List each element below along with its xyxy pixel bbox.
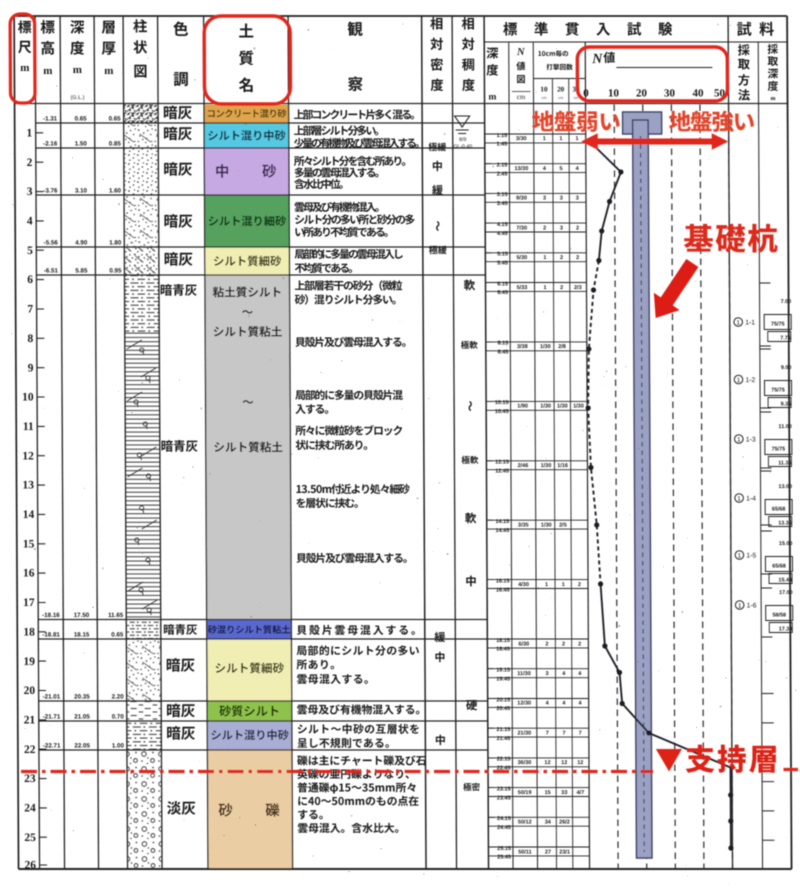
svg-text:6: 6 xyxy=(27,274,33,286)
svg-text:50/11: 50/11 xyxy=(518,849,532,855)
svg-text:3/38: 3/38 xyxy=(517,344,528,350)
svg-text:1/30: 1/30 xyxy=(540,344,551,350)
svg-text:2/5: 2/5 xyxy=(559,523,567,529)
svg-text:13: 13 xyxy=(23,480,35,492)
svg-text:1: 1 xyxy=(545,582,548,588)
svg-text:8: 8 xyxy=(27,333,33,345)
svg-text:11.35: 11.35 xyxy=(778,461,791,467)
svg-text:2: 2 xyxy=(27,157,33,169)
svg-text:1.60: 1.60 xyxy=(109,188,122,195)
svg-text:N: N xyxy=(591,52,603,67)
svg-text:17: 17 xyxy=(23,597,35,609)
svg-text:11/30: 11/30 xyxy=(517,671,531,677)
svg-text:1-4: 1-4 xyxy=(746,496,756,503)
svg-text:36/30: 36/30 xyxy=(518,760,532,766)
svg-text:1-5: 1-5 xyxy=(746,553,756,560)
svg-text:3: 3 xyxy=(560,225,563,231)
svg-text:3/30: 3/30 xyxy=(516,136,527,142)
svg-text:0.65: 0.65 xyxy=(109,116,122,123)
svg-text:m: m xyxy=(73,64,82,76)
svg-text:12.15: 12.15 xyxy=(495,460,509,466)
svg-text:20.45: 20.45 xyxy=(496,706,510,712)
svg-text:7: 7 xyxy=(546,730,549,736)
svg-text:13/30: 13/30 xyxy=(514,166,528,172)
svg-text:10: 10 xyxy=(540,86,548,94)
svg-text:18.15: 18.15 xyxy=(74,632,90,639)
svg-text:4: 4 xyxy=(27,216,33,228)
svg-text:30: 30 xyxy=(664,88,676,100)
svg-text:0.70: 0.70 xyxy=(112,714,125,721)
svg-text:2: 2 xyxy=(560,285,563,291)
svg-text:1: 1 xyxy=(737,436,741,443)
svg-text:17.00: 17.00 xyxy=(779,590,793,596)
svg-text:4: 4 xyxy=(578,671,582,677)
svg-text:1/30: 1/30 xyxy=(557,404,568,410)
svg-text:1: 1 xyxy=(737,377,741,384)
svg-text:1.15: 1.15 xyxy=(496,133,507,139)
svg-text:2.15: 2.15 xyxy=(497,163,508,169)
svg-text:1: 1 xyxy=(543,136,546,142)
svg-text:15: 15 xyxy=(545,790,551,796)
svg-text:20: 20 xyxy=(636,88,648,100)
svg-text:1: 1 xyxy=(543,285,546,291)
svg-text:1: 1 xyxy=(737,495,741,502)
svg-text:24: 24 xyxy=(24,803,36,815)
svg-text:1-1: 1-1 xyxy=(745,320,755,327)
svg-text:1.80: 1.80 xyxy=(109,240,122,247)
svg-text:65/68: 65/68 xyxy=(772,564,786,570)
svg-text:0: 0 xyxy=(583,88,589,100)
svg-text:cm: cm xyxy=(573,96,578,100)
svg-text:-6.51: -6.51 xyxy=(44,268,59,275)
svg-text:7.75: 7.75 xyxy=(780,336,791,342)
svg-text:3: 3 xyxy=(545,671,548,677)
svg-text:5.15: 5.15 xyxy=(497,252,508,258)
svg-text:15.40: 15.40 xyxy=(779,578,793,584)
svg-text:11: 11 xyxy=(23,421,34,433)
svg-text:1-3: 1-3 xyxy=(746,437,756,444)
svg-text:14.15: 14.15 xyxy=(495,519,509,525)
svg-text:4: 4 xyxy=(562,671,566,677)
svg-text:1/30: 1/30 xyxy=(540,404,551,410)
svg-text:21.15: 21.15 xyxy=(497,727,511,733)
svg-text:24.15: 24.15 xyxy=(497,816,511,822)
svg-text:6/30: 6/30 xyxy=(518,641,529,647)
svg-text:2/3: 2/3 xyxy=(574,285,582,291)
svg-text:8/9: 8/9 xyxy=(459,137,466,143)
svg-text:3/35: 3/35 xyxy=(518,523,529,529)
svg-text:15: 15 xyxy=(23,538,35,550)
svg-text:75/75: 75/75 xyxy=(771,388,785,394)
svg-text:7.00: 7.00 xyxy=(781,299,792,305)
svg-text:9.00: 9.00 xyxy=(781,365,792,371)
svg-text:7: 7 xyxy=(579,730,582,736)
svg-text:22.05: 22.05 xyxy=(74,743,90,750)
svg-text:(G.L.): (G.L.) xyxy=(71,95,85,101)
svg-text:0.65: 0.65 xyxy=(75,116,88,123)
svg-text:2: 2 xyxy=(545,641,548,647)
svg-text:3.15: 3.15 xyxy=(497,192,508,198)
svg-text:26/2: 26/2 xyxy=(559,820,570,826)
svg-text:2: 2 xyxy=(576,255,579,261)
svg-text:-5.56: -5.56 xyxy=(44,240,59,247)
svg-text:4.90: 4.90 xyxy=(75,240,88,247)
svg-text:3: 3 xyxy=(576,196,579,202)
svg-text:20.35: 20.35 xyxy=(74,694,90,701)
svg-text:3: 3 xyxy=(543,196,546,202)
svg-text:4.45: 4.45 xyxy=(497,231,508,237)
svg-text:12.45: 12.45 xyxy=(495,469,509,475)
svg-text:22.15: 22.15 xyxy=(497,757,511,763)
svg-text:4: 4 xyxy=(543,166,547,172)
svg-text:5.85: 5.85 xyxy=(75,268,88,275)
svg-text:65/68: 65/68 xyxy=(772,507,786,513)
svg-text:-1.31: -1.31 xyxy=(43,116,58,123)
svg-text:13.35: 13.35 xyxy=(778,521,792,527)
svg-text:26: 26 xyxy=(25,860,37,872)
svg-text:9.35: 9.35 xyxy=(781,402,792,408)
svg-text:10.45: 10.45 xyxy=(495,409,509,415)
svg-text:23.15: 23.15 xyxy=(497,786,511,792)
svg-text:23.45: 23.45 xyxy=(497,795,511,801)
svg-text:1: 1 xyxy=(562,582,565,588)
svg-text:13.00: 13.00 xyxy=(779,484,793,490)
svg-text:1/16: 1/16 xyxy=(557,463,568,469)
svg-text:5.45: 5.45 xyxy=(497,261,508,267)
svg-text:7/30: 7/30 xyxy=(516,225,527,231)
svg-text:1/30: 1/30 xyxy=(541,463,552,469)
svg-text:6.15: 6.15 xyxy=(497,281,508,287)
svg-text:-2.16: -2.16 xyxy=(43,141,58,148)
svg-text:m: m xyxy=(104,65,113,77)
svg-text:16.15: 16.15 xyxy=(496,578,510,584)
svg-text:14: 14 xyxy=(23,509,35,521)
svg-text:12: 12 xyxy=(22,450,34,462)
svg-text:4.15: 4.15 xyxy=(497,222,508,228)
svg-text:25.45: 25.45 xyxy=(497,855,511,861)
svg-text:1-2: 1-2 xyxy=(745,377,755,384)
svg-text:19.45: 19.45 xyxy=(496,677,510,683)
svg-text:N: N xyxy=(516,47,525,58)
svg-text:2.45: 2.45 xyxy=(497,171,508,177)
svg-text:20.15: 20.15 xyxy=(496,697,510,703)
svg-text:1.45: 1.45 xyxy=(497,142,508,148)
svg-text:1: 1 xyxy=(738,602,742,609)
svg-text:75/75: 75/75 xyxy=(771,322,785,328)
svg-text:cm: cm xyxy=(541,96,546,100)
svg-text:0.85: 0.85 xyxy=(109,141,122,148)
svg-text:4/30: 4/30 xyxy=(518,582,529,588)
svg-text:12: 12 xyxy=(561,760,567,766)
svg-text:12: 12 xyxy=(577,760,583,766)
svg-text:6.45: 6.45 xyxy=(497,290,508,296)
svg-text:4: 4 xyxy=(576,166,580,172)
svg-text:11.00: 11.00 xyxy=(779,424,792,430)
svg-text:cm: cm xyxy=(558,96,563,100)
svg-text:-21.01: -21.01 xyxy=(43,694,61,701)
svg-text:-21.71: -21.71 xyxy=(43,714,61,721)
svg-text:27: 27 xyxy=(545,849,551,855)
svg-text:7: 7 xyxy=(27,304,33,316)
svg-text:3.10: 3.10 xyxy=(75,188,88,195)
svg-text:1: 1 xyxy=(26,127,32,139)
svg-text:-18.81: -18.81 xyxy=(42,632,60,639)
svg-text:-22.71: -22.71 xyxy=(43,743,61,750)
svg-text:21.05: 21.05 xyxy=(74,714,90,721)
svg-text:0.95: 0.95 xyxy=(109,268,122,275)
svg-text:19: 19 xyxy=(23,656,35,668)
svg-text:50/12: 50/12 xyxy=(518,820,532,826)
svg-text:5: 5 xyxy=(560,166,563,172)
svg-text:14.45: 14.45 xyxy=(495,528,509,534)
svg-text:1/30: 1/30 xyxy=(541,523,552,529)
svg-text:10: 10 xyxy=(22,392,34,404)
svg-text:50/19: 50/19 xyxy=(518,790,532,796)
svg-text:1: 1 xyxy=(543,255,546,261)
svg-text:9/30: 9/30 xyxy=(516,196,527,202)
svg-text:1.00: 1.00 xyxy=(112,743,125,750)
svg-text:9: 9 xyxy=(28,362,34,374)
svg-text:23/1: 23/1 xyxy=(559,849,570,855)
svg-text:2: 2 xyxy=(562,641,565,647)
svg-text:2: 2 xyxy=(543,225,546,231)
svg-text:m: m xyxy=(489,93,497,103)
svg-text:m: m xyxy=(771,96,776,102)
svg-text:40: 40 xyxy=(692,88,704,100)
svg-text:16.45: 16.45 xyxy=(496,587,510,593)
svg-text:12/30: 12/30 xyxy=(517,701,531,707)
svg-text:75/75: 75/75 xyxy=(772,447,786,453)
svg-text:GL-0.40: GL-0.40 xyxy=(453,144,472,150)
svg-text:5/33: 5/33 xyxy=(517,285,528,291)
svg-text:5/30: 5/30 xyxy=(516,255,527,261)
svg-text:-18.16: -18.16 xyxy=(42,612,60,619)
svg-text:m: m xyxy=(20,62,29,74)
svg-text:2.20: 2.20 xyxy=(112,694,125,701)
svg-text:2/8: 2/8 xyxy=(558,344,566,350)
svg-text:1/30: 1/30 xyxy=(573,404,584,410)
svg-text:1: 1 xyxy=(575,136,578,142)
svg-text:34: 34 xyxy=(545,820,552,826)
svg-text:17.50: 17.50 xyxy=(74,612,90,619)
svg-text:22: 22 xyxy=(24,744,36,756)
svg-text:21/30: 21/30 xyxy=(517,730,531,736)
svg-text:2: 2 xyxy=(576,225,579,231)
svg-text:3: 3 xyxy=(27,186,33,198)
svg-text:1: 1 xyxy=(559,136,562,142)
svg-text:cm: cm xyxy=(517,93,526,101)
svg-text:21.45: 21.45 xyxy=(497,736,511,742)
svg-text:25: 25 xyxy=(24,832,36,844)
svg-text:4: 4 xyxy=(562,701,566,707)
svg-text:33: 33 xyxy=(561,790,567,796)
svg-text:21: 21 xyxy=(24,715,36,727)
svg-text:58/58: 58/58 xyxy=(772,613,786,619)
svg-text:10: 10 xyxy=(608,88,620,100)
svg-text:-3.76: -3.76 xyxy=(43,188,58,195)
svg-text:8.45: 8.45 xyxy=(498,350,509,356)
svg-text:7: 7 xyxy=(562,730,565,736)
svg-text:24.45: 24.45 xyxy=(497,825,511,831)
svg-text:16: 16 xyxy=(23,568,35,580)
svg-text:4: 4 xyxy=(578,701,582,707)
svg-text:11.65: 11.65 xyxy=(108,612,124,619)
svg-text:15.00: 15.00 xyxy=(779,541,793,547)
svg-text:2: 2 xyxy=(578,641,581,647)
svg-text:18.15: 18.15 xyxy=(496,638,510,644)
svg-text:1-6: 1-6 xyxy=(747,603,757,610)
svg-text:1/90: 1/90 xyxy=(517,404,528,410)
svg-text:18.45: 18.45 xyxy=(496,647,510,653)
svg-text:25.15: 25.15 xyxy=(497,846,511,852)
svg-text:3: 3 xyxy=(560,196,563,202)
svg-text:17.38: 17.38 xyxy=(779,627,793,633)
svg-text:18: 18 xyxy=(23,626,35,638)
svg-text:4/7: 4/7 xyxy=(577,790,585,796)
svg-text:2: 2 xyxy=(560,255,563,261)
svg-text:20: 20 xyxy=(557,86,565,94)
svg-text:0.65: 0.65 xyxy=(111,632,124,639)
svg-text:1: 1 xyxy=(736,319,740,326)
svg-text:4: 4 xyxy=(546,701,550,707)
svg-text:2/46: 2/46 xyxy=(518,463,529,469)
svg-text:20: 20 xyxy=(24,685,36,697)
svg-text:12: 12 xyxy=(544,760,550,766)
svg-text:1.50: 1.50 xyxy=(75,141,88,148)
svg-text:1: 1 xyxy=(738,552,742,559)
svg-text:10.15: 10.15 xyxy=(495,400,509,406)
svg-text:m: m xyxy=(43,65,52,77)
svg-text:3.45: 3.45 xyxy=(497,201,508,207)
svg-text:19.15: 19.15 xyxy=(496,668,510,674)
svg-text:23: 23 xyxy=(24,773,36,785)
svg-text:2: 2 xyxy=(578,582,581,588)
